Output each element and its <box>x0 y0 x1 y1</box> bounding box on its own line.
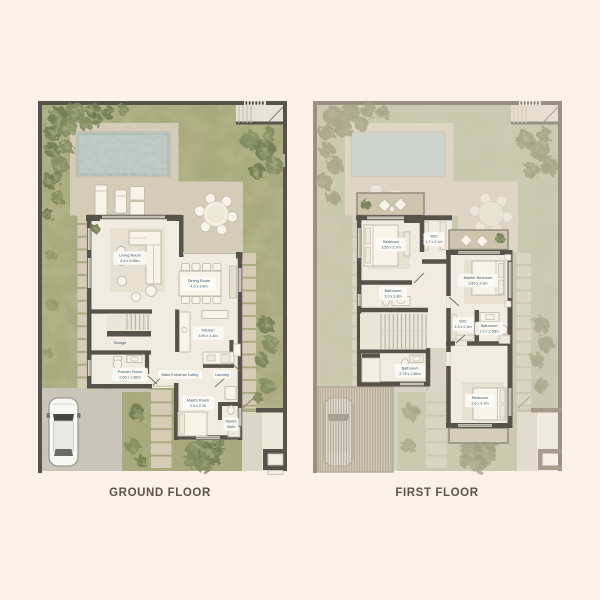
svg-text:2.65 x 1.85m: 2.65 x 1.85m <box>119 375 140 379</box>
svg-text:2.9 x 2.15: 2.9 x 2.15 <box>190 404 206 408</box>
svg-text:WIC: WIC <box>459 319 467 324</box>
svg-text:WIC: WIC <box>430 234 438 239</box>
svg-text:Storage: Storage <box>114 341 127 345</box>
svg-text:Maid's: Maid's <box>225 419 236 424</box>
svg-text:Laundry: Laundry <box>215 372 229 377</box>
svg-text:3.0 x 1.8m: 3.0 x 1.8m <box>384 294 401 298</box>
svg-text:8.4 x 5.65m: 8.4 x 5.65m <box>120 259 139 263</box>
svg-text:Maid's Room: Maid's Room <box>187 398 210 403</box>
svg-text:Main Entrance Lobby: Main Entrance Lobby <box>162 372 199 377</box>
svg-text:4.0 x 3.4m: 4.0 x 3.4m <box>190 284 207 288</box>
svg-text:1.9 x 2.65m: 1.9 x 2.65m <box>479 329 498 333</box>
svg-text:Powder Room: Powder Room <box>118 369 143 374</box>
svg-text:Bathroom: Bathroom <box>402 366 419 371</box>
svg-text:1.7 x 2.1m: 1.7 x 2.1m <box>425 240 442 244</box>
svg-text:3.95 x 3.4m: 3.95 x 3.4m <box>198 334 217 338</box>
svg-text:Bathroom: Bathroom <box>481 323 498 328</box>
svg-text:3.6 x 4.2m: 3.6 x 4.2m <box>471 401 488 405</box>
svg-text:3.85 x 3.6m: 3.85 x 3.6m <box>468 281 487 285</box>
svg-text:FIRST FLOOR: FIRST FLOOR <box>395 487 478 499</box>
svg-text:1.6 x 2.3m: 1.6 x 2.3m <box>454 325 471 329</box>
svg-text:Dining Room: Dining Room <box>188 278 211 283</box>
svg-text:Master Bedroom: Master Bedroom <box>464 275 493 280</box>
svg-text:Bath: Bath <box>227 425 235 429</box>
svg-text:GROUND FLOOR: GROUND FLOOR <box>109 487 211 499</box>
svg-text:Bathroom: Bathroom <box>385 288 402 293</box>
svg-text:Bedroom: Bedroom <box>383 239 399 244</box>
svg-text:Living Room: Living Room <box>119 253 141 258</box>
svg-text:2.75 x 1.65m: 2.75 x 1.65m <box>399 372 420 376</box>
svg-text:Kitchen: Kitchen <box>202 328 215 333</box>
svg-text:Bedroom: Bedroom <box>472 395 488 400</box>
svg-text:3.55 x 3.7m: 3.55 x 3.7m <box>381 245 400 249</box>
